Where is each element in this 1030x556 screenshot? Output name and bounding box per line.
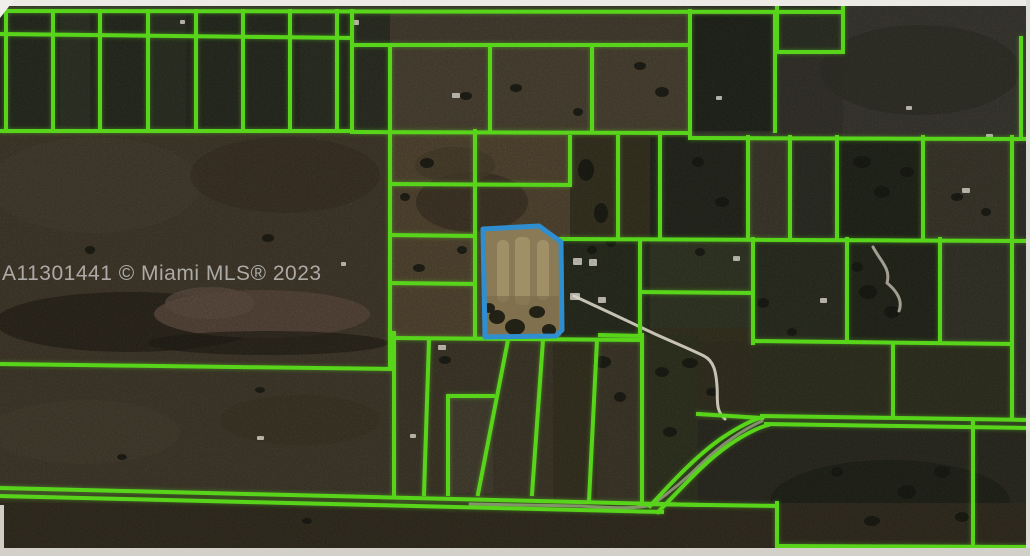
photo-border bbox=[1026, 0, 1030, 556]
parcel-boundary-line bbox=[777, 546, 1030, 547]
subject-parcel-tree bbox=[505, 319, 525, 335]
parcel-boundary-line bbox=[561, 239, 1030, 241]
subject-parcel-layer bbox=[483, 226, 562, 337]
photo-border bbox=[0, 0, 1030, 6]
parcel-boundary-line bbox=[390, 184, 570, 185]
subject-parcel-tree bbox=[529, 306, 545, 318]
parcel-boundary-line bbox=[640, 504, 777, 506]
subject-parcel-streak bbox=[515, 237, 530, 305]
photo-border bbox=[0, 548, 1030, 556]
parcel-boundary-line bbox=[352, 132, 690, 133]
photo-border bbox=[0, 505, 4, 548]
parcel-boundary-line bbox=[640, 292, 753, 293]
mls-listing-photo: A11301441 © Miami MLS® 2023 bbox=[0, 0, 1030, 556]
subject-parcel-streak bbox=[537, 240, 549, 300]
parcel-boundary-line bbox=[0, 11, 843, 12]
parcel-boundary-line bbox=[690, 138, 1030, 139]
subject-parcel-streak bbox=[497, 240, 509, 302]
parcel-boundary-line bbox=[600, 335, 642, 336]
parcel-boundary-line bbox=[390, 235, 475, 236]
mls-watermark: A11301441 © Miami MLS® 2023 bbox=[2, 262, 322, 286]
parcel-boundary-line bbox=[390, 283, 475, 284]
